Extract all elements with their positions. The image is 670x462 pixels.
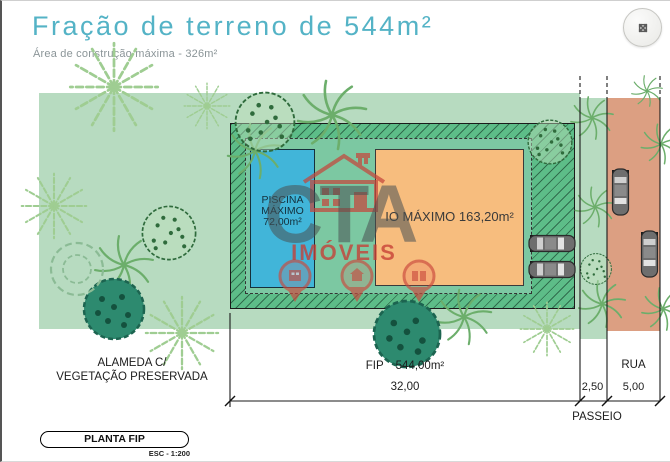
- street-area: [607, 98, 660, 331]
- plan-scale-label: ESC - 1:200: [40, 449, 190, 458]
- sidewalk-label: PASSEIO: [560, 411, 634, 423]
- alameda-label: ALAMEDA C/ VEGETAÇÃO PRESERVADA: [37, 356, 227, 384]
- lot-width-dimension: 32,00: [230, 381, 580, 393]
- pool-label: PISCINA MÁXIMO 72,00m²: [250, 195, 315, 228]
- site-plan-page: Fração de terreno de 544m² Área de const…: [0, 0, 670, 462]
- building-label: IO MÁXIMO 163,20m²: [375, 209, 524, 224]
- sidewalk-width-dimension: 2,50: [578, 381, 607, 393]
- plan-name-box: PLANTA FIP: [40, 431, 189, 448]
- sidewalk-area: [580, 98, 607, 339]
- fip-area-label: FIP544,00m²: [230, 360, 580, 372]
- page-subtitle: Área de construção máxima - 326m²: [33, 48, 218, 60]
- street-width-dimension: 5,00: [607, 381, 660, 393]
- expand-arrows-icon: [633, 18, 653, 38]
- street-label: RUA: [607, 359, 660, 371]
- page-title: Fração de terreno de 544m²: [32, 11, 433, 42]
- expand-button[interactable]: [623, 8, 662, 47]
